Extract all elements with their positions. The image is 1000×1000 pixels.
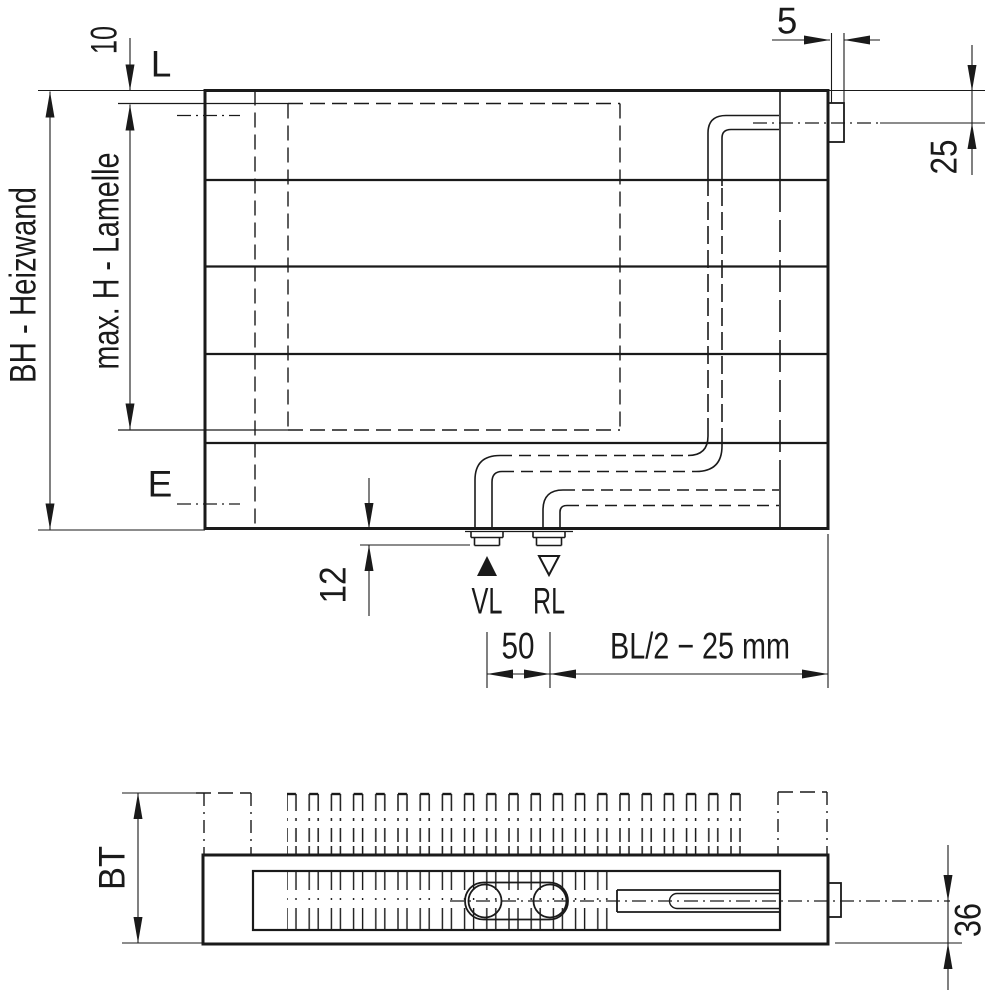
supply-pipe bbox=[475, 116, 779, 530]
connection-stubs bbox=[465, 532, 573, 546]
label-bh-heizwand: BH - Heizwand bbox=[3, 187, 44, 383]
return-pipe bbox=[543, 490, 779, 529]
label-dim-36: 36 bbox=[948, 903, 989, 937]
dim-5 bbox=[772, 33, 880, 103]
radiator-outline bbox=[205, 91, 828, 529]
bottom-view bbox=[122, 792, 962, 990]
label-bt: BT bbox=[92, 846, 133, 890]
dim-12 bbox=[360, 478, 470, 616]
return-marker bbox=[539, 556, 559, 575]
label-dim-25: 25 bbox=[924, 140, 965, 175]
front-view bbox=[118, 91, 880, 577]
label-vent-l: L bbox=[151, 44, 172, 85]
label-dim-50: 50 bbox=[502, 626, 535, 667]
label-dim-12: 12 bbox=[313, 567, 354, 604]
dim-36 bbox=[835, 845, 962, 990]
label-rl: RL bbox=[533, 581, 565, 622]
lamelle-division-lines bbox=[205, 180, 828, 443]
page: 10 L 5 25 BH - Heizwand max. H - Lamelle… bbox=[0, 0, 1000, 1000]
label-dim-5: 5 bbox=[777, 1, 798, 42]
bottom-side-tab bbox=[828, 883, 841, 917]
label-vl: VL bbox=[472, 581, 503, 622]
side-connection-tab bbox=[753, 103, 880, 142]
fin-comb bbox=[287, 793, 743, 855]
label-dim-10: 10 bbox=[84, 26, 125, 54]
label-dim-bl2: BL/2 − 25 mm bbox=[610, 626, 790, 667]
radiator-technical-drawing: 10 L 5 25 BH - Heizwand max. H - Lamelle… bbox=[0, 0, 1000, 1000]
dim-bt bbox=[122, 793, 203, 943]
supply-marker bbox=[477, 556, 497, 576]
dim-max-h bbox=[126, 38, 135, 430]
label-drain-e: E bbox=[148, 464, 173, 505]
label-max-h-lamelle: max. H - Lamelle bbox=[86, 153, 127, 370]
